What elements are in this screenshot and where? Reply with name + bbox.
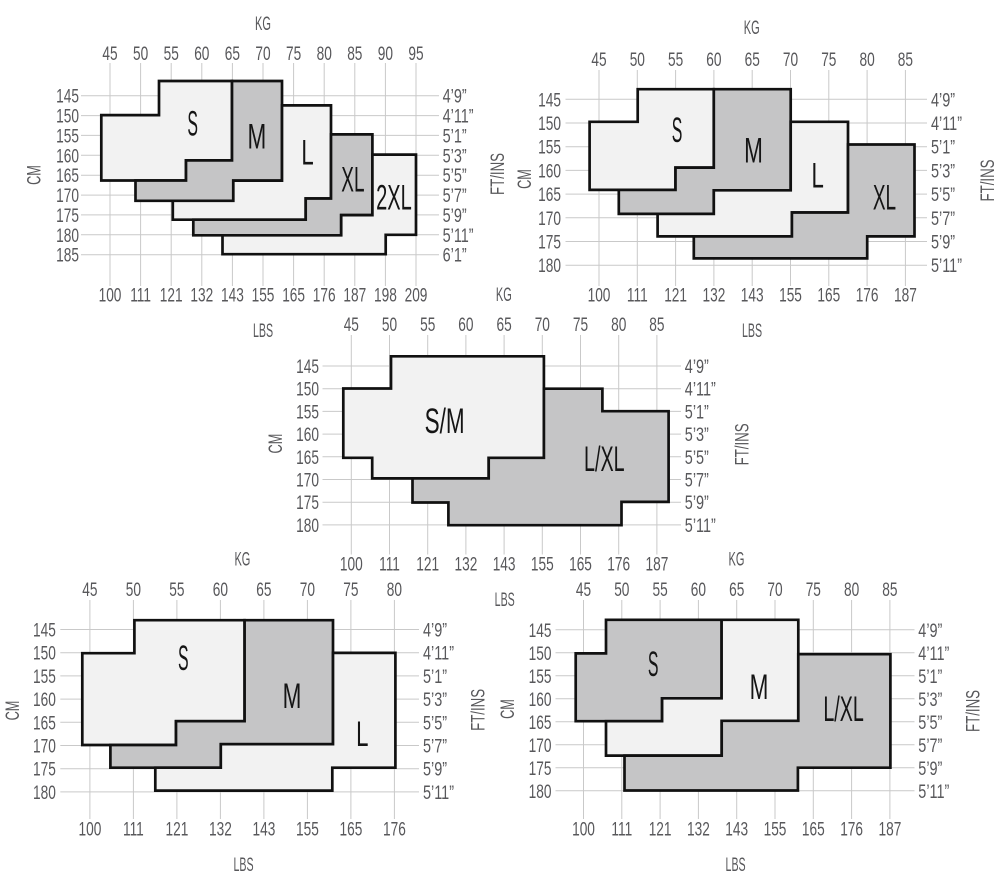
svg-text:5’1”: 5’1” (423, 666, 447, 687)
svg-text:FT/INS: FT/INS (468, 689, 489, 731)
svg-text:2XL: 2XL (376, 179, 412, 218)
svg-text:143: 143 (725, 818, 748, 840)
svg-text:100: 100 (78, 818, 101, 840)
svg-text:M: M (248, 117, 267, 156)
svg-text:160: 160 (56, 145, 79, 167)
svg-text:75: 75 (806, 579, 821, 601)
svg-text:75: 75 (573, 314, 588, 336)
svg-text:155: 155 (764, 818, 787, 840)
svg-text:132: 132 (454, 553, 477, 575)
svg-text:143: 143 (252, 818, 275, 840)
svg-text:CM: CM (266, 434, 287, 454)
svg-text:85: 85 (347, 43, 362, 65)
svg-text:4’11”: 4’11” (685, 379, 716, 400)
svg-text:165: 165 (569, 553, 592, 575)
svg-text:175: 175 (296, 492, 319, 514)
svg-text:170: 170 (529, 735, 552, 757)
svg-text:155: 155 (33, 666, 56, 688)
svg-text:L: L (356, 715, 368, 754)
svg-text:165: 165 (538, 184, 561, 206)
svg-text:165: 165 (296, 447, 319, 469)
svg-text:45: 45 (591, 49, 606, 71)
svg-text:70: 70 (535, 314, 550, 336)
svg-text:70: 70 (783, 49, 798, 71)
svg-text:5’3”: 5’3” (423, 689, 447, 710)
svg-text:176: 176 (313, 284, 336, 306)
svg-text:CM: CM (498, 699, 519, 719)
svg-text:85: 85 (882, 579, 897, 601)
svg-text:5’11”: 5’11” (423, 782, 454, 803)
svg-text:KG: KG (744, 18, 760, 39)
svg-text:4’11”: 4’11” (443, 106, 474, 127)
svg-text:150: 150 (56, 105, 79, 127)
svg-text:145: 145 (529, 620, 552, 642)
svg-text:111: 111 (130, 284, 151, 306)
svg-text:155: 155 (538, 136, 561, 158)
svg-text:M: M (283, 677, 302, 716)
svg-text:155: 155 (296, 401, 319, 423)
svg-text:111: 111 (611, 818, 632, 840)
svg-text:6’1”: 6’1” (443, 245, 467, 266)
svg-text:LBS: LBS (495, 590, 515, 611)
svg-text:170: 170 (296, 469, 319, 491)
svg-text:5’3”: 5’3” (931, 161, 955, 182)
svg-text:145: 145 (33, 619, 56, 641)
svg-text:160: 160 (529, 689, 552, 711)
svg-text:80: 80 (844, 579, 859, 601)
svg-text:155: 155 (529, 666, 552, 688)
svg-text:5’9”: 5’9” (685, 492, 709, 513)
svg-text:5’5”: 5’5” (423, 712, 447, 733)
svg-text:5’11”: 5’11” (918, 781, 949, 802)
svg-text:170: 170 (33, 735, 56, 757)
svg-text:5’9”: 5’9” (918, 758, 942, 779)
svg-text:175: 175 (33, 758, 56, 780)
svg-text:100: 100 (588, 284, 611, 306)
svg-text:5’5”: 5’5” (918, 712, 942, 733)
svg-text:132: 132 (209, 818, 232, 840)
svg-text:176: 176 (607, 553, 630, 575)
svg-text:55: 55 (420, 314, 435, 336)
svg-text:LBS: LBS (726, 855, 746, 876)
svg-text:4’9”: 4’9” (685, 356, 709, 377)
svg-text:80: 80 (611, 314, 626, 336)
svg-text:90: 90 (378, 43, 393, 65)
svg-text:176: 176 (840, 818, 863, 840)
svg-text:45: 45 (82, 579, 97, 601)
svg-text:45: 45 (576, 579, 591, 601)
svg-text:5’7”: 5’7” (423, 736, 447, 757)
svg-text:KG: KG (496, 285, 512, 306)
svg-text:165: 165 (56, 165, 79, 187)
svg-text:121: 121 (165, 818, 188, 840)
svg-text:5’11”: 5’11” (443, 225, 474, 246)
svg-text:187: 187 (645, 553, 668, 575)
svg-text:80: 80 (317, 43, 332, 65)
svg-text:5’1”: 5’1” (918, 666, 942, 687)
svg-text:145: 145 (56, 85, 79, 107)
svg-text:165: 165 (802, 818, 825, 840)
svg-text:5’7”: 5’7” (685, 470, 709, 491)
svg-text:55: 55 (164, 43, 179, 65)
svg-text:209: 209 (405, 284, 428, 306)
svg-text:187: 187 (894, 284, 917, 306)
svg-text:70: 70 (300, 579, 315, 601)
svg-text:5’3”: 5’3” (918, 689, 942, 710)
svg-text:S: S (187, 103, 198, 143)
svg-text:85: 85 (649, 314, 664, 336)
svg-text:100: 100 (340, 553, 363, 575)
svg-text:155: 155 (252, 284, 275, 306)
svg-text:S/M: S/M (425, 402, 465, 441)
svg-text:165: 165 (33, 712, 56, 734)
svg-text:121: 121 (416, 553, 439, 575)
svg-text:5’7”: 5’7” (443, 185, 467, 206)
svg-text:50: 50 (133, 43, 148, 65)
svg-text:160: 160 (296, 424, 319, 446)
svg-text:CM: CM (24, 165, 45, 185)
svg-text:4’11”: 4’11” (931, 113, 962, 134)
svg-text:KG: KG (234, 550, 250, 571)
svg-text:132: 132 (190, 284, 213, 306)
svg-text:LBS: LBS (233, 855, 253, 876)
svg-text:5’11”: 5’11” (931, 255, 962, 276)
svg-text:111: 111 (627, 284, 648, 306)
svg-text:187: 187 (343, 284, 366, 306)
svg-text:100: 100 (572, 818, 595, 840)
svg-text:80: 80 (859, 49, 874, 71)
svg-text:FT/INS: FT/INS (488, 153, 509, 195)
svg-text:KG: KG (729, 550, 745, 571)
svg-text:5’1”: 5’1” (685, 402, 709, 423)
svg-text:5’5”: 5’5” (443, 165, 467, 186)
svg-text:M: M (750, 668, 769, 707)
svg-text:198: 198 (374, 284, 397, 306)
svg-text:50: 50 (382, 314, 397, 336)
svg-text:65: 65 (256, 579, 271, 601)
svg-text:5’9”: 5’9” (443, 205, 467, 226)
svg-text:160: 160 (33, 689, 56, 711)
svg-text:S: S (672, 110, 683, 150)
svg-text:5’9”: 5’9” (423, 759, 447, 780)
svg-text:LBS: LBS (742, 321, 762, 342)
svg-text:185: 185 (56, 244, 79, 266)
svg-text:132: 132 (702, 284, 725, 306)
svg-text:55: 55 (668, 49, 683, 71)
svg-text:95: 95 (408, 43, 423, 65)
svg-text:4’9”: 4’9” (918, 620, 942, 641)
svg-text:5’5”: 5’5” (931, 184, 955, 205)
svg-text:155: 155 (56, 125, 79, 147)
svg-text:FT/INS: FT/INS (963, 690, 984, 732)
svg-text:L/XL: L/XL (823, 690, 864, 729)
svg-text:5’7”: 5’7” (918, 735, 942, 756)
svg-text:175: 175 (529, 758, 552, 780)
svg-text:4’9”: 4’9” (931, 89, 955, 110)
svg-text:150: 150 (33, 642, 56, 664)
svg-text:XL: XL (341, 159, 364, 199)
svg-text:175: 175 (56, 205, 79, 227)
svg-text:175: 175 (538, 231, 561, 253)
svg-text:LBS: LBS (253, 321, 273, 342)
svg-text:170: 170 (538, 208, 561, 230)
svg-text:L: L (301, 134, 313, 173)
svg-text:45: 45 (344, 314, 359, 336)
svg-text:60: 60 (194, 43, 209, 65)
svg-text:180: 180 (33, 782, 56, 804)
svg-text:60: 60 (706, 49, 721, 71)
svg-text:L: L (811, 156, 823, 195)
svg-text:70: 70 (255, 43, 270, 65)
svg-text:111: 111 (379, 553, 400, 575)
svg-text:180: 180 (56, 225, 79, 247)
svg-text:65: 65 (496, 314, 511, 336)
svg-text:85: 85 (898, 49, 913, 71)
svg-text:180: 180 (529, 781, 552, 803)
svg-text:CM: CM (515, 169, 536, 189)
svg-text:50: 50 (126, 579, 141, 601)
svg-text:FT/INS: FT/INS (732, 423, 753, 465)
svg-text:55: 55 (652, 579, 667, 601)
svg-text:L/XL: L/XL (584, 440, 625, 479)
svg-text:165: 165 (282, 284, 305, 306)
svg-text:50: 50 (630, 49, 645, 71)
svg-text:155: 155 (296, 818, 319, 840)
svg-text:150: 150 (296, 378, 319, 400)
svg-text:165: 165 (339, 818, 362, 840)
svg-text:170: 170 (56, 185, 79, 207)
svg-text:4’9”: 4’9” (443, 86, 467, 107)
svg-text:143: 143 (741, 284, 764, 306)
svg-text:4’11”: 4’11” (918, 643, 949, 664)
svg-text:M: M (744, 132, 763, 171)
svg-text:45: 45 (102, 43, 117, 65)
svg-text:60: 60 (691, 579, 706, 601)
svg-text:132: 132 (687, 818, 710, 840)
svg-text:5’9”: 5’9” (931, 232, 955, 253)
svg-text:180: 180 (296, 515, 319, 537)
svg-text:150: 150 (529, 643, 552, 665)
svg-text:176: 176 (383, 818, 406, 840)
svg-text:155: 155 (531, 553, 554, 575)
svg-text:145: 145 (296, 356, 319, 378)
svg-text:5’5”: 5’5” (685, 447, 709, 468)
svg-text:143: 143 (221, 284, 244, 306)
svg-text:CM: CM (3, 701, 24, 721)
svg-text:S: S (648, 644, 659, 684)
svg-text:4’11”: 4’11” (423, 643, 454, 664)
svg-text:4’9”: 4’9” (423, 620, 447, 641)
svg-text:165: 165 (529, 712, 552, 734)
svg-text:155: 155 (779, 284, 802, 306)
svg-text:176: 176 (856, 284, 879, 306)
svg-text:75: 75 (343, 579, 358, 601)
svg-text:65: 65 (729, 579, 744, 601)
svg-text:5’1”: 5’1” (443, 126, 467, 147)
svg-text:60: 60 (213, 579, 228, 601)
svg-text:FT/INS: FT/INS (978, 159, 999, 201)
svg-text:111: 111 (123, 818, 144, 840)
svg-text:5’3”: 5’3” (685, 424, 709, 445)
svg-text:5’7”: 5’7” (931, 208, 955, 229)
svg-text:KG: KG (255, 14, 271, 35)
svg-text:5’3”: 5’3” (443, 145, 467, 166)
svg-text:121: 121 (160, 284, 183, 306)
svg-text:60: 60 (458, 314, 473, 336)
svg-text:80: 80 (387, 579, 402, 601)
svg-text:150: 150 (538, 113, 561, 135)
svg-text:5’1”: 5’1” (931, 137, 955, 158)
svg-text:70: 70 (767, 579, 782, 601)
svg-text:187: 187 (878, 818, 901, 840)
svg-text:75: 75 (821, 49, 836, 71)
svg-text:75: 75 (286, 43, 301, 65)
svg-text:121: 121 (664, 284, 687, 306)
svg-text:65: 65 (745, 49, 760, 71)
svg-text:160: 160 (538, 160, 561, 182)
svg-text:XL: XL (873, 177, 896, 217)
svg-text:S: S (178, 638, 189, 678)
svg-text:5’11”: 5’11” (685, 515, 716, 536)
svg-text:55: 55 (169, 579, 184, 601)
svg-text:65: 65 (225, 43, 240, 65)
svg-text:165: 165 (817, 284, 840, 306)
svg-text:121: 121 (649, 818, 672, 840)
svg-text:145: 145 (538, 89, 561, 111)
svg-text:50: 50 (614, 579, 629, 601)
svg-text:100: 100 (99, 284, 122, 306)
svg-text:143: 143 (493, 553, 516, 575)
svg-text:180: 180 (538, 255, 561, 277)
